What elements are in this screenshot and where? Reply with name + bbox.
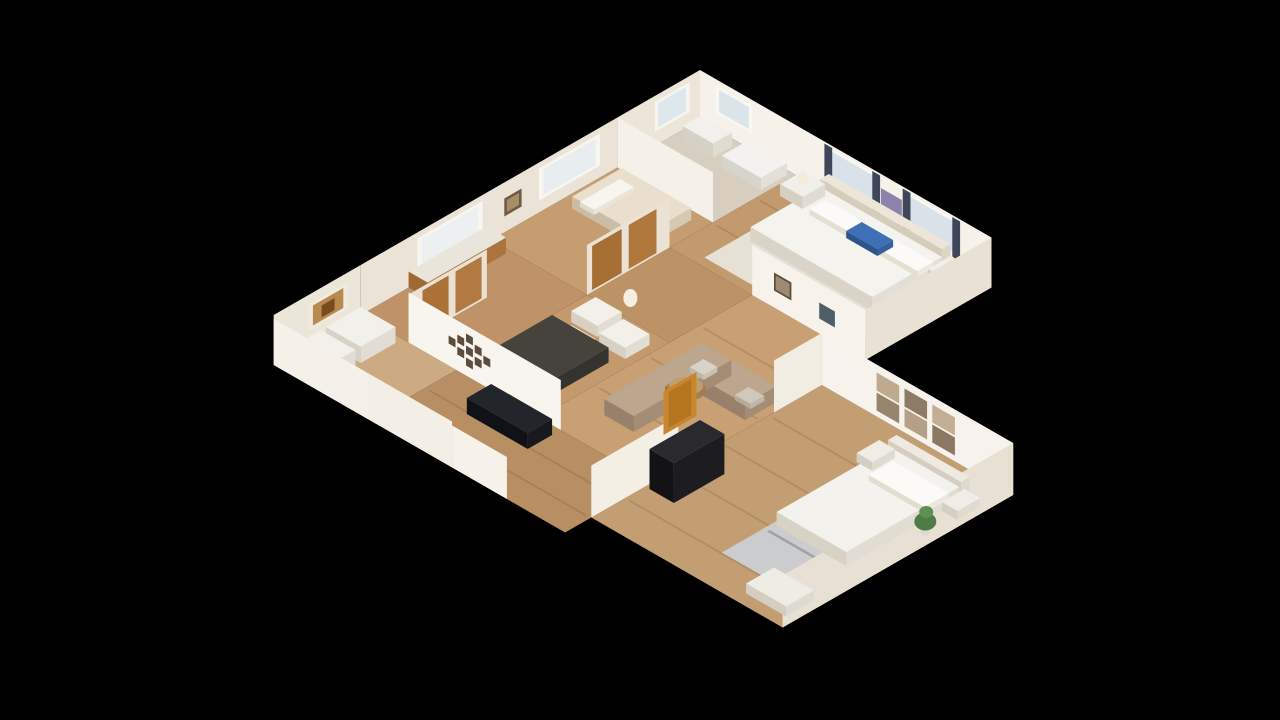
guest-curtain xyxy=(952,217,960,263)
dollhouse-viewport[interactable] xyxy=(0,0,1280,720)
guest-lamp xyxy=(798,171,808,185)
dollhouse-3d-model[interactable] xyxy=(0,0,1280,720)
floor-lamp-shade xyxy=(623,289,637,307)
plant-leaves xyxy=(919,506,933,518)
